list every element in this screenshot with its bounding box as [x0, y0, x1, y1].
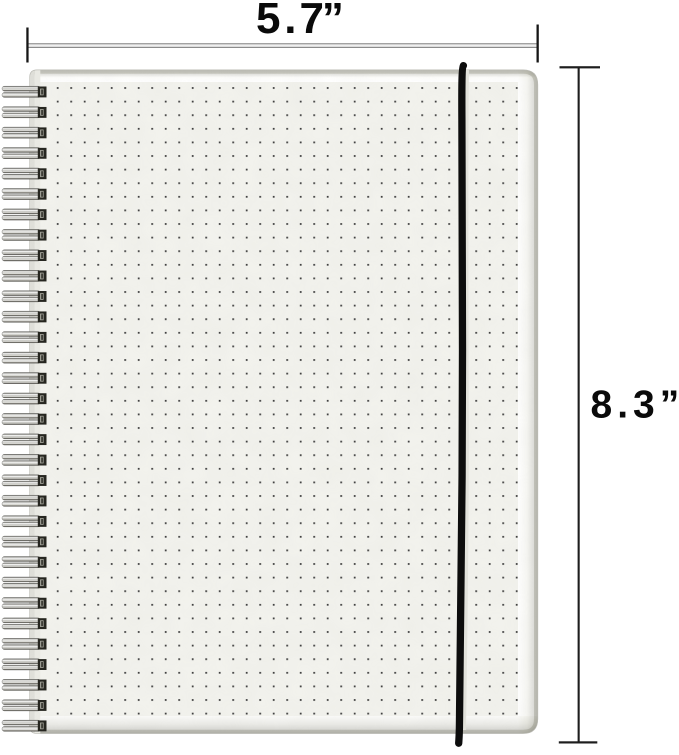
svg-text:5.7”: 5.7” [256, 0, 344, 43]
svg-text:8.3”: 8.3” [591, 384, 679, 427]
